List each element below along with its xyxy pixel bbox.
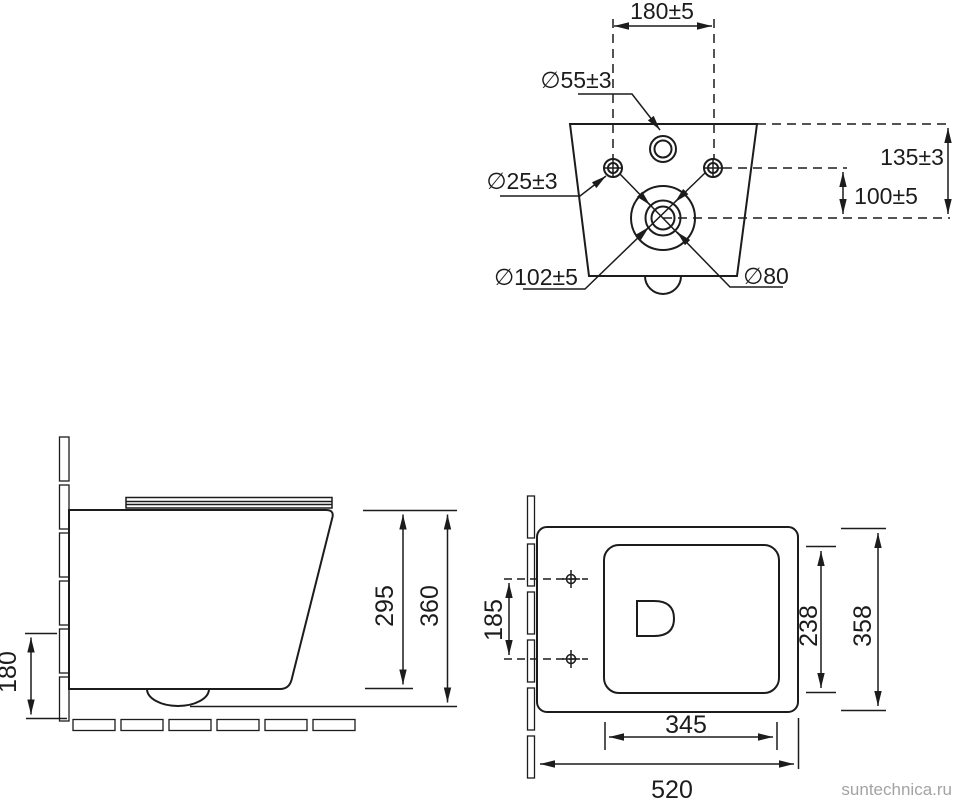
wall-hatch-segment (60, 533, 70, 577)
dim-rim-height-label: 295 (371, 585, 399, 627)
wall-hatch-segment (60, 629, 70, 673)
wall-hatch-segment (60, 437, 70, 481)
wall-hatch-segment (60, 581, 70, 625)
side-view: 180 295 360 (0, 437, 457, 731)
dim-top-to-outlet-label: 135±3 (880, 144, 944, 170)
wall-hatch-segment (60, 677, 70, 721)
side-outlet-arc (147, 689, 209, 706)
seat-lid (126, 498, 332, 509)
floor-hatch-segment (73, 720, 115, 731)
plan-body-outline (537, 527, 798, 712)
outlet-arrow-ul (640, 195, 650, 205)
dim-overall-width-label: 358 (849, 605, 877, 647)
toilet-dimension-diagram: 180±5 ∅55±3 ∅25±3 ∅102±5 ∅80 (0, 0, 953, 800)
floor-hatch-segment (265, 720, 307, 731)
watermark: suntechnica.ru (841, 780, 952, 799)
wall-hatch-segment (528, 592, 535, 634)
rear-bottom-arc (645, 276, 681, 294)
dim-outlet-height-label: 180 (0, 651, 22, 693)
dim-plan-hole-spacing-label: 185 (480, 599, 508, 641)
wall-hatch-segment (528, 640, 535, 682)
outlet-arrow-lr (677, 232, 687, 242)
dim-mount-hole-label: ∅25±3 (486, 168, 557, 194)
floor-hatch-segment (121, 720, 163, 731)
outlet-arrow-ll (639, 227, 649, 237)
plan-bowl-rim (604, 545, 779, 693)
plan-flush-opening (637, 601, 674, 636)
dim-outlet-outer-label: ∅102±5 (494, 264, 578, 290)
dim-outlet-inner-label: ∅80 (743, 263, 789, 289)
side-body-outline (69, 510, 333, 689)
dim-overall-height-label: 360 (416, 585, 444, 627)
dim-inlet-label: ∅55±3 (540, 67, 611, 93)
inlet-circle-inner (655, 141, 672, 158)
technical-drawing-page: 180±5 ∅55±3 ∅25±3 ∅102±5 ∅80 (0, 0, 953, 800)
wall-hatch-segment (528, 736, 535, 778)
wall-hatch-segment (528, 688, 535, 730)
floor-hatch-segment (169, 720, 211, 731)
wall-hatch-segment (528, 496, 535, 538)
dim-bowl-length-label: 345 (665, 711, 707, 739)
dim-hole-spacing-label: 180±5 (630, 0, 694, 24)
rear-view: 180±5 ∅55±3 ∅25±3 ∅102±5 ∅80 (486, 0, 950, 294)
dim-bowl-width-label: 238 (795, 605, 823, 647)
wall-hatch-segment (60, 485, 70, 529)
outlet-arrow-ur (675, 193, 684, 202)
floor-hatch-segment (217, 720, 259, 731)
dim-holes-to-outlet-label: 100±5 (854, 183, 918, 209)
floor-hatch-segment (313, 720, 355, 731)
plan-view: 185 238 358 345 520 (480, 496, 886, 800)
dim-overall-depth-label: 520 (651, 776, 693, 800)
